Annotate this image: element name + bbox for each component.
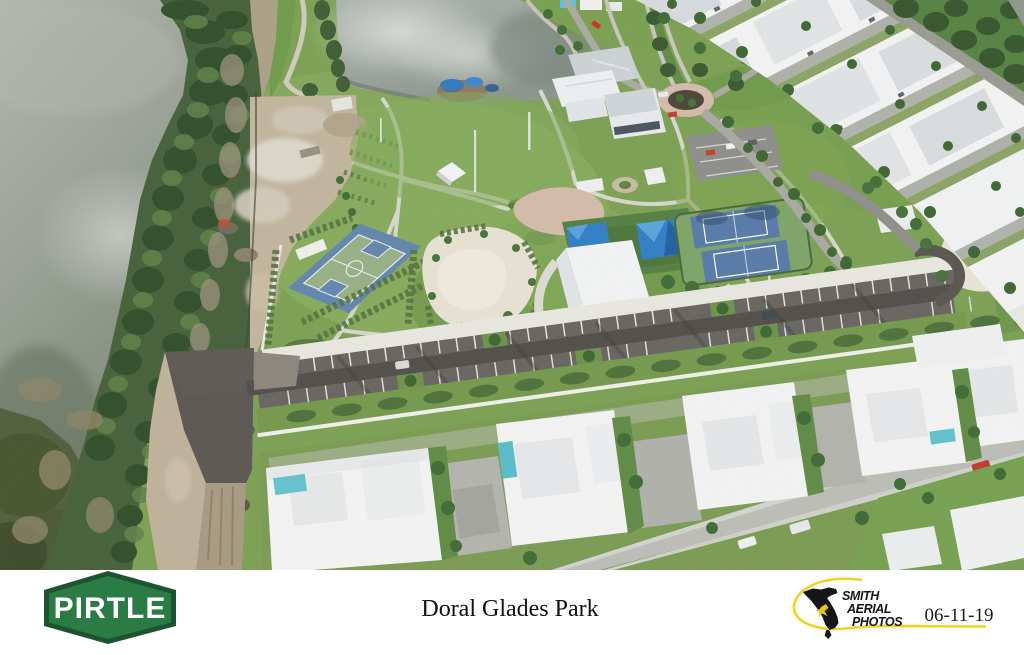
svg-text:SMITH: SMITH <box>842 589 880 603</box>
svg-text:PHOTOS: PHOTOS <box>852 615 903 629</box>
svg-text:PIRTLE: PIRTLE <box>54 592 167 625</box>
svg-text:Doral Glades Park: Doral Glades Park <box>421 596 598 622</box>
svg-text:AERIAL: AERIAL <box>846 602 891 616</box>
svg-text:06-11-19: 06-11-19 <box>925 605 994 626</box>
